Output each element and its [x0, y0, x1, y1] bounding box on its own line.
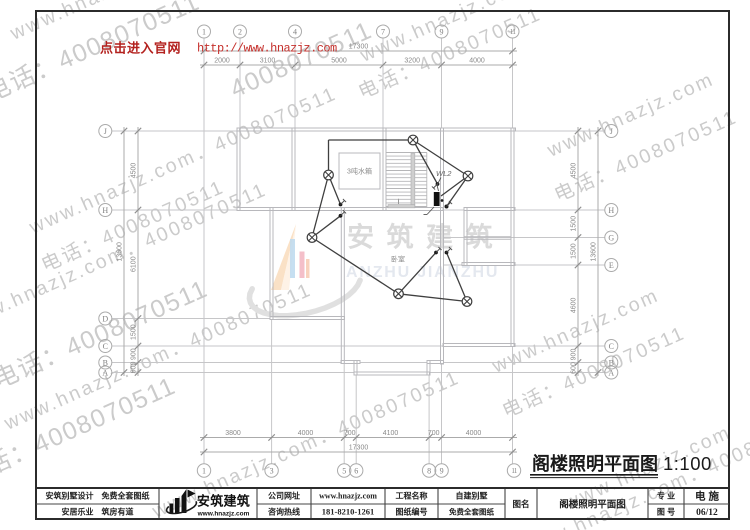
svg-text:A: A	[102, 368, 108, 377]
svg-text:电 施: 电 施	[695, 490, 719, 503]
svg-text:600: 600	[131, 362, 138, 374]
svg-text:图纸编号: 图纸编号	[396, 507, 428, 517]
svg-text:2000: 2000	[214, 58, 230, 65]
svg-text:H: H	[608, 206, 614, 215]
svg-text:公司网址: 公司网址	[268, 491, 300, 501]
svg-text:3吨水箱: 3吨水箱	[347, 167, 372, 176]
svg-text:3: 3	[270, 466, 274, 475]
svg-text:900: 900	[571, 349, 578, 361]
svg-text:WL2: WL2	[436, 169, 452, 178]
svg-text:2: 2	[238, 27, 242, 36]
svg-text:www.hnazjz.com: www.hnazjz.com	[319, 492, 377, 501]
svg-text:4: 4	[293, 27, 297, 36]
svg-text:安居乐业 筑房有道: 安居乐业 筑房有道	[62, 507, 134, 517]
svg-text:G: G	[608, 233, 614, 242]
svg-text:181-8210-1261: 181-8210-1261	[322, 507, 374, 517]
svg-text:1500: 1500	[571, 243, 578, 259]
svg-text:工程名称: 工程名称	[396, 491, 428, 501]
svg-text:安筑别墅设计 免费全套图纸: 安筑别墅设计 免费全套图纸	[46, 491, 150, 501]
svg-text:13600: 13600	[117, 242, 124, 262]
svg-text:8: 8	[427, 466, 431, 475]
svg-text:3800: 3800	[225, 430, 241, 437]
svg-text:1: 1	[202, 27, 206, 36]
svg-text:1: 1	[202, 466, 206, 475]
svg-text:图名: 图名	[512, 499, 529, 509]
svg-text:06/12: 06/12	[696, 508, 718, 518]
svg-text:1:100: 1:100	[663, 453, 712, 474]
svg-text:4000: 4000	[298, 430, 314, 437]
svg-text:E: E	[609, 261, 614, 270]
svg-text:C: C	[103, 342, 108, 351]
svg-text:自建别墅: 自建别墅	[456, 491, 488, 501]
svg-text:6: 6	[354, 466, 358, 475]
svg-text:4000: 4000	[466, 430, 482, 437]
svg-text:4500: 4500	[571, 163, 578, 179]
svg-text:咨询热线: 咨询热线	[268, 507, 300, 517]
svg-text:600: 600	[571, 362, 578, 374]
svg-text:700: 700	[428, 430, 440, 437]
svg-text:4600: 4600	[571, 298, 578, 314]
svg-text:J: J	[610, 127, 613, 136]
svg-text:17300: 17300	[349, 44, 369, 51]
svg-text:5: 5	[342, 466, 346, 475]
svg-text:9: 9	[440, 466, 444, 475]
svg-text:3100: 3100	[260, 58, 276, 65]
svg-text:图 号: 图 号	[657, 508, 675, 517]
svg-text:3200: 3200	[404, 58, 420, 65]
svg-text:1500: 1500	[571, 216, 578, 232]
svg-text:阁楼照明平面图: 阁楼照明平面图	[532, 453, 658, 474]
svg-text:4500: 4500	[131, 163, 138, 179]
svg-text:H: H	[102, 206, 108, 215]
svg-text:安筑建筑: 安筑建筑	[197, 494, 250, 509]
svg-text:6100: 6100	[131, 256, 138, 272]
svg-text:免费全套图纸: 免费全套图纸	[449, 507, 494, 517]
svg-text:1500: 1500	[131, 324, 138, 340]
svg-text:13600: 13600	[591, 242, 598, 262]
svg-text:17300: 17300	[349, 445, 369, 452]
svg-text:卧室: 卧室	[391, 255, 405, 264]
svg-text:A: A	[608, 368, 614, 377]
svg-text:C: C	[609, 342, 614, 351]
svg-text:www.hnazjz.com: www.hnazjz.com	[197, 511, 250, 518]
svg-text:D: D	[102, 314, 108, 323]
svg-text:点击进入官网: 点击进入官网	[100, 41, 181, 56]
svg-text:专 业: 专 业	[657, 491, 675, 501]
svg-text:4000: 4000	[469, 58, 485, 65]
svg-text:9: 9	[440, 27, 444, 36]
svg-text:700: 700	[344, 430, 356, 437]
svg-text:阁楼照明平面图: 阁楼照明平面图	[559, 499, 626, 511]
svg-text:http://www.hnazjz.com: http://www.hnazjz.com	[197, 42, 337, 56]
svg-text:5000: 5000	[331, 58, 347, 65]
svg-text:900: 900	[131, 348, 138, 360]
svg-text:4100: 4100	[383, 430, 399, 437]
svg-text:7: 7	[381, 27, 385, 36]
svg-text:J: J	[104, 127, 107, 136]
